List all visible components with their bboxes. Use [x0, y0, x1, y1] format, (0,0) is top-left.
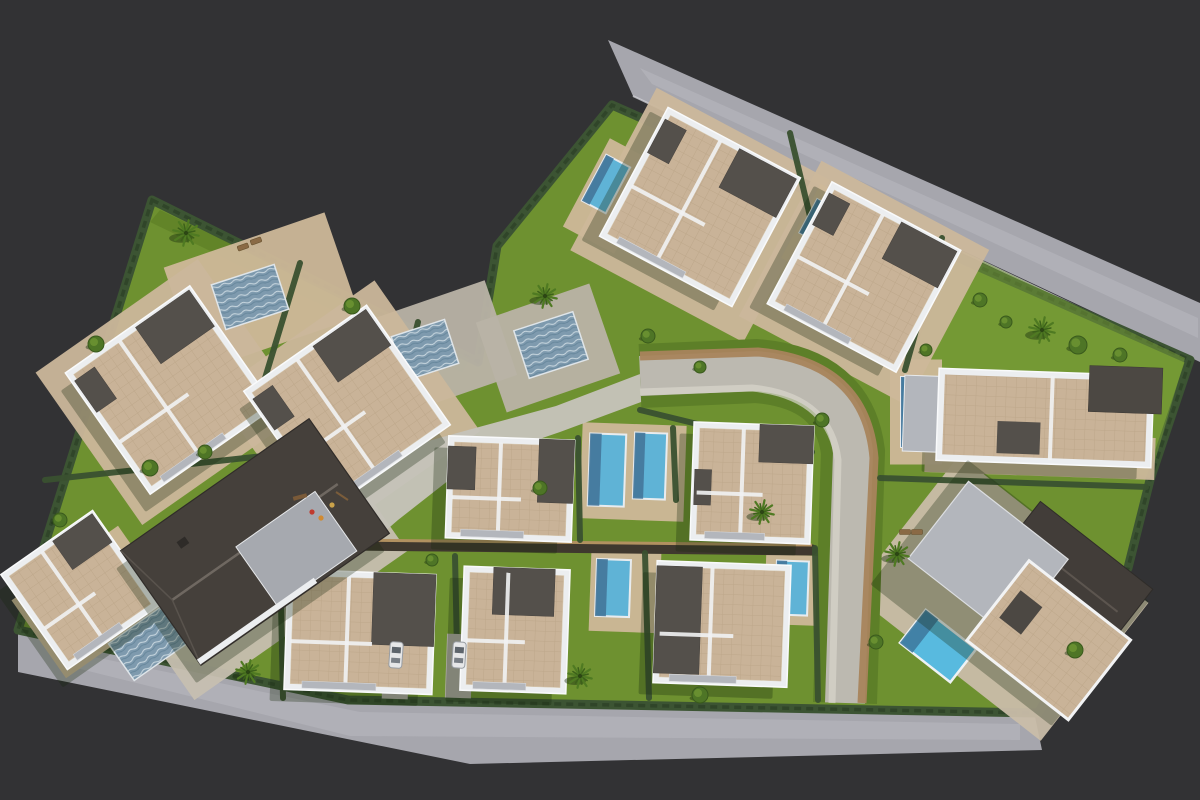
bush-highlight	[975, 295, 982, 302]
palm-crown	[246, 670, 250, 674]
palm-crown	[1040, 328, 1044, 332]
bush-highlight	[922, 346, 928, 352]
palm-crown	[184, 231, 188, 235]
villa-central-2	[676, 421, 814, 556]
lounger-seat	[912, 530, 923, 535]
villa-bottom-3	[639, 560, 792, 699]
bush-highlight	[346, 300, 354, 308]
bush-highlight	[696, 363, 702, 369]
sun-lounger-4	[912, 530, 923, 535]
dark-roof-section-2	[694, 469, 712, 505]
dark-roof-section-1	[371, 572, 436, 646]
bush-highlight	[535, 483, 542, 490]
bush-highlight	[1002, 318, 1008, 324]
pool-central-1	[588, 433, 626, 506]
hedge-divider-11	[815, 548, 818, 700]
palm-crown	[760, 510, 764, 514]
palm-crown	[543, 294, 547, 298]
lounger-seat	[900, 530, 911, 535]
play-equipment-1	[309, 509, 314, 514]
dark-overhang-2	[996, 421, 1040, 455]
parked-car-1	[389, 642, 404, 669]
car-rear-window	[391, 658, 400, 664]
villa-bottom-2	[445, 566, 570, 706]
car-windshield	[455, 647, 464, 654]
palm-crown	[895, 552, 899, 556]
bush-highlight	[1069, 644, 1077, 652]
site-plan-render	[0, 0, 1200, 800]
car-rear-window	[454, 658, 463, 664]
bush-highlight	[55, 515, 62, 522]
front-wall	[473, 682, 526, 691]
side-wing	[902, 375, 941, 452]
play-equipment-3	[329, 502, 334, 507]
car-body	[452, 642, 467, 669]
bush-highlight	[144, 462, 152, 470]
bush-highlight	[428, 556, 434, 562]
dark-roof-section-1	[492, 567, 555, 616]
bush-highlight	[643, 331, 650, 338]
car-body	[389, 642, 404, 669]
bush-highlight	[1071, 338, 1080, 347]
play-equipment-2	[318, 515, 323, 520]
pool-central-2	[633, 432, 667, 499]
car-windshield	[392, 647, 401, 654]
dark-roof-section-1	[759, 424, 814, 464]
dark-roof-section-1	[653, 566, 702, 675]
bush-highlight	[1115, 350, 1122, 357]
dark-roof-section-2	[447, 446, 476, 490]
bush-highlight	[694, 689, 702, 697]
dark-overhang	[1088, 366, 1163, 415]
villa-central-1	[431, 435, 575, 554]
bush-highlight	[90, 338, 98, 346]
hedge-divider-6	[578, 438, 580, 540]
site-plan-svg	[0, 0, 1200, 800]
parked-car-2	[452, 642, 467, 669]
pool-deep-end	[595, 559, 608, 616]
palm-crown	[578, 674, 582, 678]
bush-highlight	[817, 415, 824, 422]
pool-bottom-2	[595, 559, 631, 617]
sun-lounger-3	[900, 530, 911, 535]
bush-highlight	[200, 447, 207, 454]
villa-right-terrace	[902, 359, 1163, 480]
bush-highlight	[871, 637, 878, 644]
hedge-divider-7	[673, 428, 676, 500]
